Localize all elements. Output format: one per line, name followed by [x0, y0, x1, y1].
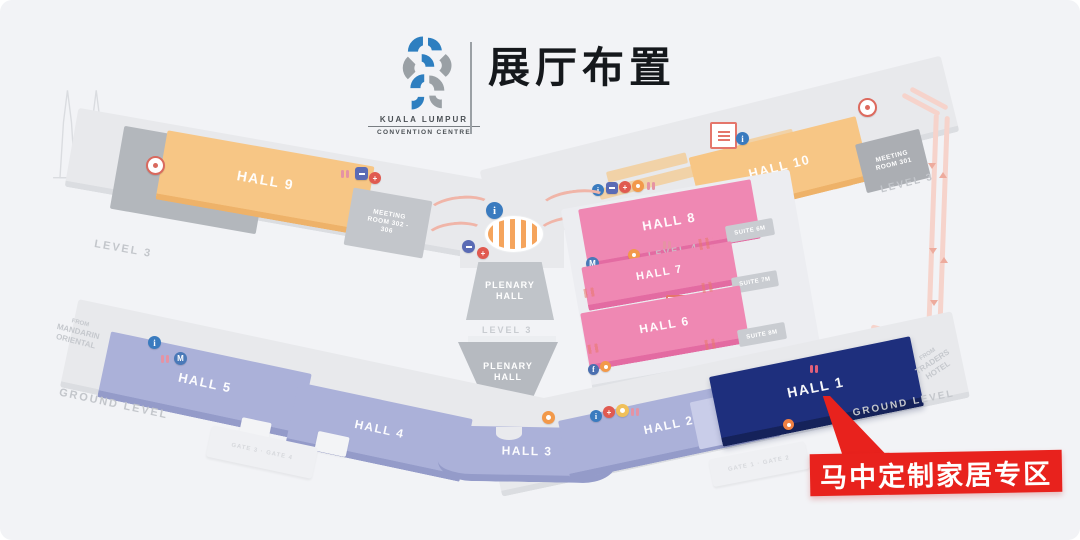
level3-west-label: LEVEL 3	[93, 238, 153, 260]
escalator-core-icon	[485, 216, 543, 252]
annotation-label: 马中定制家居专区	[820, 451, 1053, 494]
meeting-room-302-306-label: MEETING ROOM 302 - 306	[360, 207, 415, 239]
brand-text: KUALA LUMPUR CONVENTION CENTRE	[366, 115, 482, 136]
restroom-icon	[647, 182, 655, 190]
hall-9-label: HALL 9	[236, 167, 296, 193]
route-path	[937, 116, 950, 334]
hall-8-label: HALL 8	[641, 209, 697, 233]
cafe-icon	[600, 361, 611, 372]
plenary-hall-l3-label: PLENARY HALL	[482, 280, 538, 303]
gate-west-label: GATE 3 · GATE 4	[231, 443, 294, 462]
plenary-hall-l1-label: PLENARY HALL	[480, 361, 536, 384]
restroom-icon	[341, 170, 349, 178]
info-icon: i	[736, 132, 749, 145]
info-icon: i	[590, 410, 602, 422]
escalator-badge-icon	[462, 240, 475, 253]
plenary-hall-l3-block: PLENARY HALL	[466, 262, 554, 320]
cloakroom-icon	[146, 156, 165, 175]
brand-line2: CONVENTION CENTRE	[366, 129, 482, 136]
brand-divider	[368, 126, 480, 127]
hall-3-label: HALL 3	[502, 444, 553, 459]
escalator-badge-icon	[606, 182, 618, 194]
suite-7m-label: SUITE 7M	[739, 276, 771, 287]
info-icon: i	[486, 202, 503, 219]
annotation-box: 马中定制家居专区	[810, 450, 1063, 496]
first-aid-icon: +	[619, 181, 631, 193]
brand-line1: KUALA LUMPUR	[366, 115, 482, 124]
header-divider	[470, 42, 472, 134]
suite-6m-label: SUITE 6M	[734, 225, 766, 236]
cafe-icon	[542, 411, 555, 424]
first-aid-icon: +	[369, 172, 381, 184]
exhibition-layout-slide: KUALA LUMPUR CONVENTION CENTRE 展厅布置 PLEN…	[0, 0, 1080, 540]
hall-2-label: HALL 2	[642, 413, 695, 437]
route-arrow-icon	[940, 257, 948, 263]
restroom-icon	[663, 241, 671, 249]
lounge-sign-icon	[710, 122, 737, 149]
meeting-room-301-label: MEETING ROOM 301	[869, 148, 917, 174]
restroom-icon	[631, 408, 639, 416]
first-aid-icon: +	[603, 406, 615, 418]
hall-7-label: HALL 7	[635, 263, 684, 283]
hall-6-label: HALL 6	[638, 314, 690, 337]
suite-8m-label: SUITE 8M	[746, 329, 778, 340]
hall-4-label: HALL 4	[353, 416, 406, 440]
level3-center-label: LEVEL 3	[482, 325, 532, 335]
route-arrow-icon	[929, 248, 937, 254]
gate-east-label: GATE 1 · GATE 2	[728, 455, 791, 473]
route-junction-icon	[858, 98, 877, 117]
hall-5-label: HALL 5	[177, 369, 233, 395]
hall-3-notch	[496, 427, 522, 440]
hall1-entry-icon	[783, 419, 794, 430]
cafe-icon	[616, 404, 629, 417]
page-title: 展厅布置	[488, 34, 676, 95]
facility-icon: f	[588, 364, 599, 375]
route-arrow-icon	[939, 172, 947, 178]
restroom-icon	[810, 365, 818, 373]
klcc-logo	[390, 34, 466, 112]
meeting-room-302-306-block: MEETING ROOM 302 - 306	[344, 187, 433, 258]
escalator-badge-icon	[355, 167, 368, 180]
cafe-icon	[632, 180, 644, 192]
metro-icon: M	[174, 352, 187, 365]
hall-1-label: HALL 1	[786, 373, 846, 400]
restroom-icon	[161, 355, 169, 363]
info-icon: i	[148, 336, 161, 349]
route-arrow-icon	[930, 300, 938, 306]
route-arrow-icon	[928, 163, 936, 169]
first-aid-icon: +	[477, 247, 489, 259]
